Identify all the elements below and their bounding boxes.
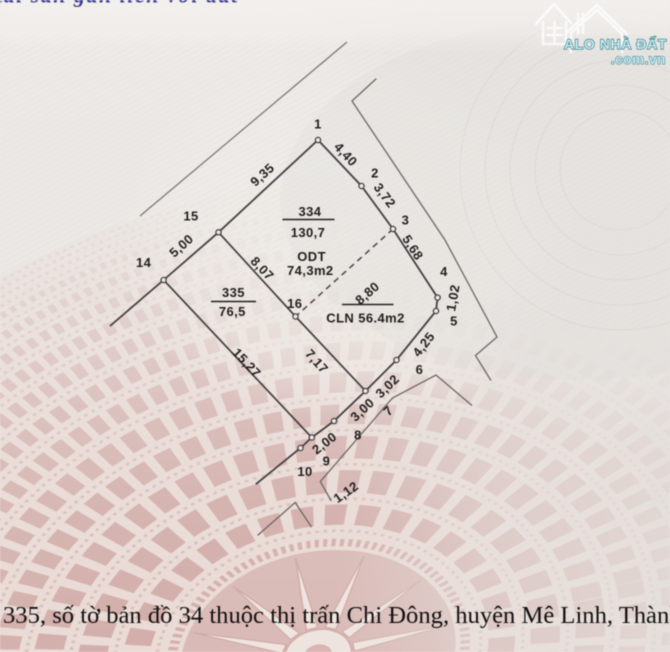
svg-text:tài sản gắn liền với đất: tài sản gắn liền với đất xyxy=(0,0,239,8)
svg-text:335, số tờ bản đồ 34 thuộc thị: 335, số tờ bản đồ 34 thuộc thị trấn Chi … xyxy=(3,602,670,629)
svg-text:.com.vn: .com.vn xyxy=(611,52,666,67)
svg-text:76,5: 76,5 xyxy=(219,304,246,319)
svg-text:15: 15 xyxy=(183,209,198,224)
svg-text:3: 3 xyxy=(402,212,410,227)
svg-text:14: 14 xyxy=(136,255,152,270)
svg-text:10: 10 xyxy=(297,464,312,479)
svg-text:6: 6 xyxy=(416,362,424,377)
svg-text:ALO NHÀ ĐẤT: ALO NHÀ ĐẤT xyxy=(564,36,667,52)
svg-text:1: 1 xyxy=(314,116,322,131)
svg-text:74,3m2: 74,3m2 xyxy=(287,263,334,278)
svg-text:16: 16 xyxy=(287,296,302,311)
svg-text:8: 8 xyxy=(354,427,362,442)
svg-text:4: 4 xyxy=(440,264,448,279)
svg-text:CLN 56.4m2: CLN 56.4m2 xyxy=(326,310,404,325)
svg-text:2: 2 xyxy=(371,165,379,180)
svg-text:130,7: 130,7 xyxy=(291,225,326,240)
svg-text:335: 335 xyxy=(222,285,245,300)
svg-text:5: 5 xyxy=(450,313,458,328)
svg-text:ODT: ODT xyxy=(297,249,326,264)
svg-text:9: 9 xyxy=(323,453,331,468)
svg-text:334: 334 xyxy=(299,204,322,219)
